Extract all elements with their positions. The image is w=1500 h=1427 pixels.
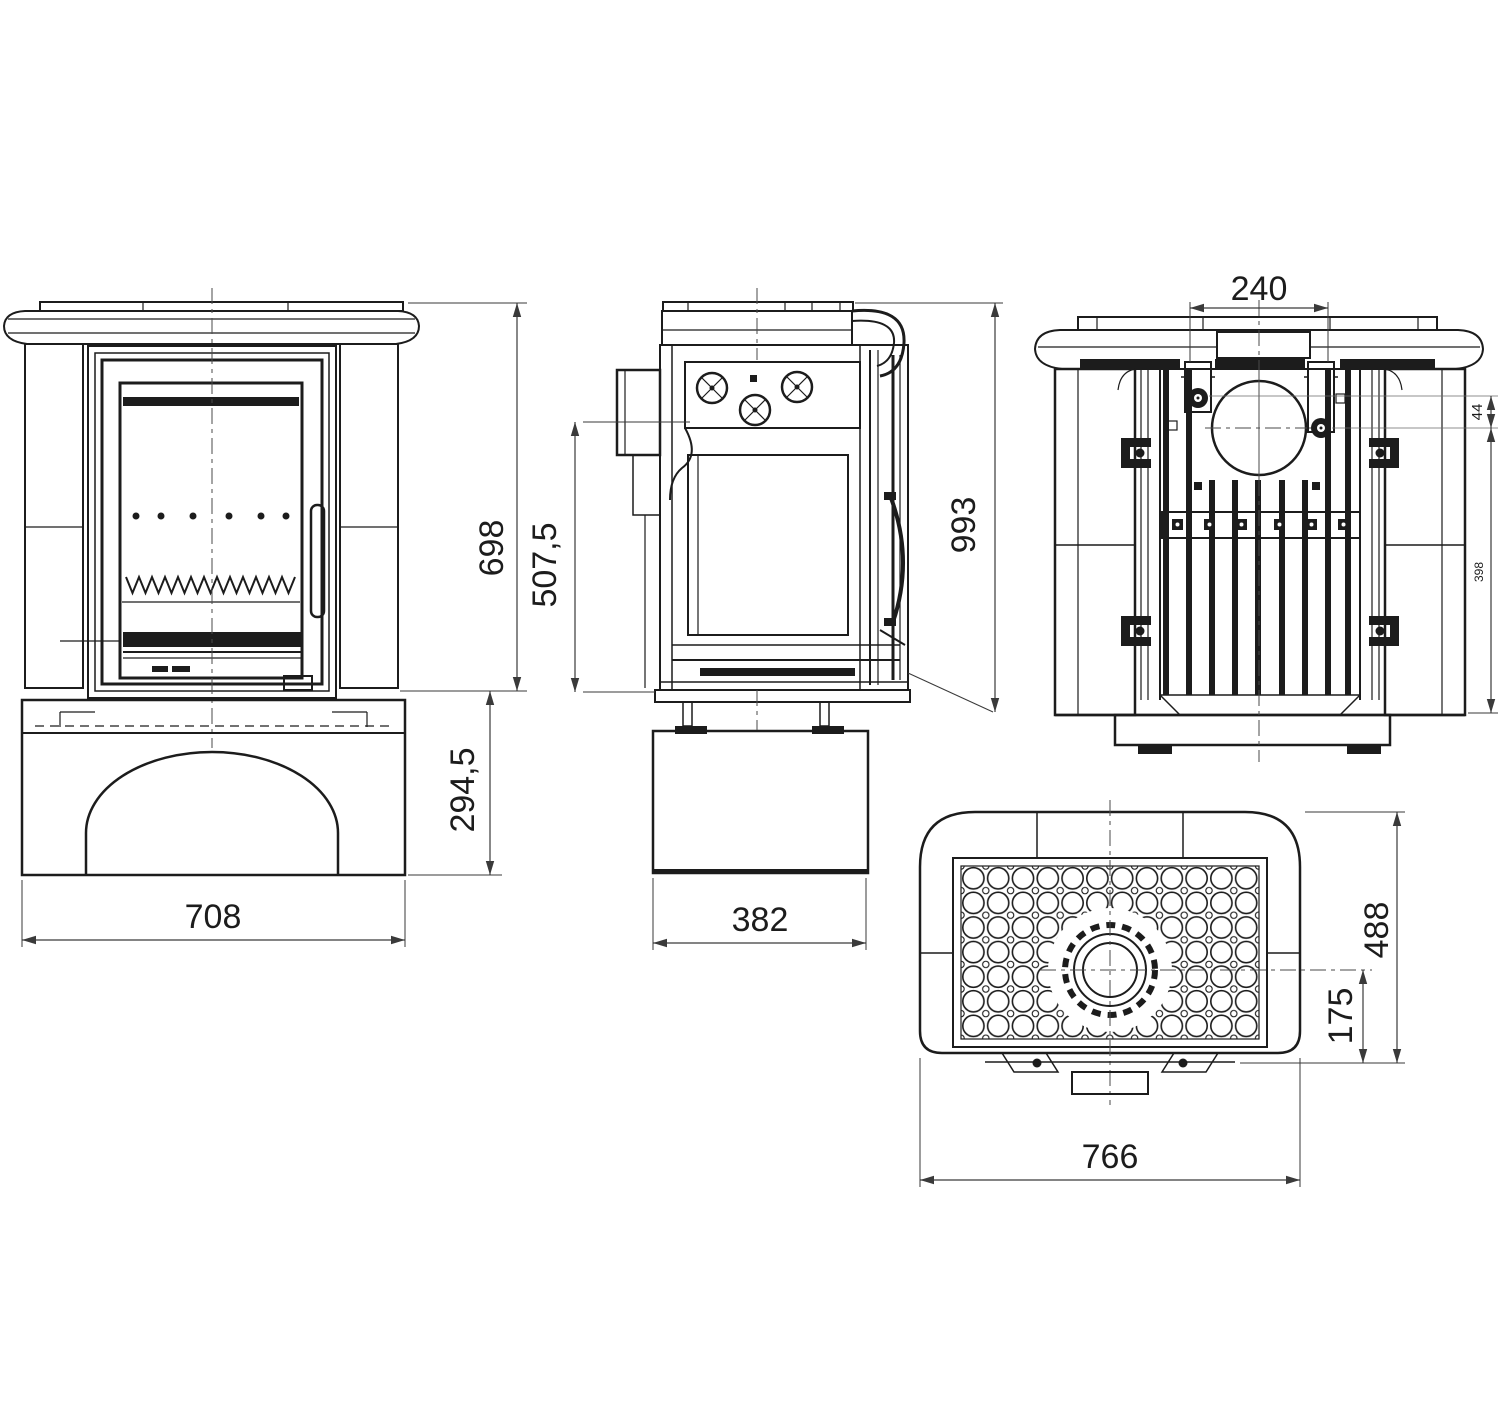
dim-label-993: 993 [945, 497, 983, 554]
side-knob [740, 395, 770, 425]
clamp [1121, 616, 1151, 646]
side-knob [697, 373, 727, 403]
clamp [1121, 438, 1151, 468]
door-flame-guard [126, 577, 295, 593]
rear-ribs [1160, 369, 1360, 695]
top-view: 488 175 766 [920, 800, 1405, 1187]
side-view: 993 507,5 382 [526, 288, 1003, 950]
front-door [60, 346, 336, 698]
base-arch [86, 752, 338, 875]
dim-label-240: 240 [1231, 270, 1288, 308]
dim-side-total-height: 993 [855, 303, 1003, 712]
dim-label-175: 175 [1322, 988, 1360, 1045]
dim-front-base-height: 294,5 [408, 691, 502, 875]
dim-label-294-5: 294,5 [444, 747, 482, 832]
dim-top-flue-to-rear: 175 [1322, 970, 1363, 1063]
dim-label-766: 766 [1082, 1138, 1139, 1176]
side-top-plate [662, 302, 904, 376]
technical-drawing: 708 698 294,5 [0, 0, 1500, 1427]
rear-bolt [1188, 388, 1208, 408]
dim-label-44: 44 [1469, 404, 1486, 421]
drawing-page: 708 698 294,5 [0, 0, 1500, 1427]
dim-front-upper-height: 698 [400, 303, 527, 691]
side-rear-flue-collar [617, 370, 660, 688]
side-feet [675, 702, 844, 734]
dim-label-382: 382 [732, 901, 789, 939]
clamp [1369, 616, 1399, 646]
dim-front-width: 708 [22, 880, 405, 947]
door-air-holes [133, 513, 290, 520]
rear-mount-posts [1168, 362, 1345, 438]
rear-top-tab [1217, 332, 1310, 358]
top-curve-inner [852, 321, 894, 366]
rear-base [1055, 695, 1465, 754]
side-pedestal [653, 731, 868, 873]
dim-label-rear-lower: 398 [1472, 562, 1486, 582]
dim-label-698: 698 [473, 520, 511, 577]
dim-label-708: 708 [185, 898, 242, 936]
front-view: 708 698 294,5 [4, 288, 527, 947]
rear-bolt [1311, 418, 1331, 438]
dim-side-flue-height: 507,5 [526, 422, 690, 692]
dim-label-507-5: 507,5 [526, 522, 564, 607]
rear-view: 240 44 398 [1035, 270, 1498, 762]
dim-side-depth: 382 [653, 878, 866, 950]
front-base [22, 700, 405, 875]
dim-label-488: 488 [1358, 902, 1396, 959]
dim-rear-lower-height: 398 [1468, 428, 1498, 713]
side-knob [782, 372, 812, 402]
side-firebox [655, 455, 910, 702]
dim-rear-offset: 44 [1209, 396, 1498, 428]
clamp [1369, 438, 1399, 468]
